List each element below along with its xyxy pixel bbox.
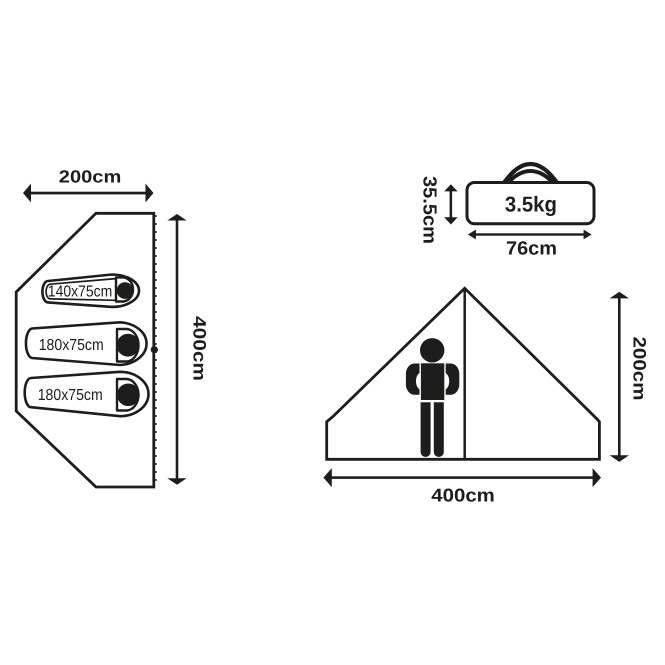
svg-text:200cm: 200cm — [630, 337, 650, 401]
svg-text:35.5cm: 35.5cm — [419, 176, 440, 244]
svg-text:180x75cm: 180x75cm — [38, 387, 103, 404]
svg-text:200cm: 200cm — [59, 167, 121, 187]
svg-text:3.5kg: 3.5kg — [505, 193, 557, 217]
svg-text:400cm: 400cm — [190, 316, 210, 381]
svg-text:140x75cm: 140x75cm — [48, 283, 113, 300]
svg-text:400cm: 400cm — [431, 485, 495, 506]
svg-text:76cm: 76cm — [506, 239, 557, 260]
svg-text:180x75cm: 180x75cm — [39, 337, 104, 354]
